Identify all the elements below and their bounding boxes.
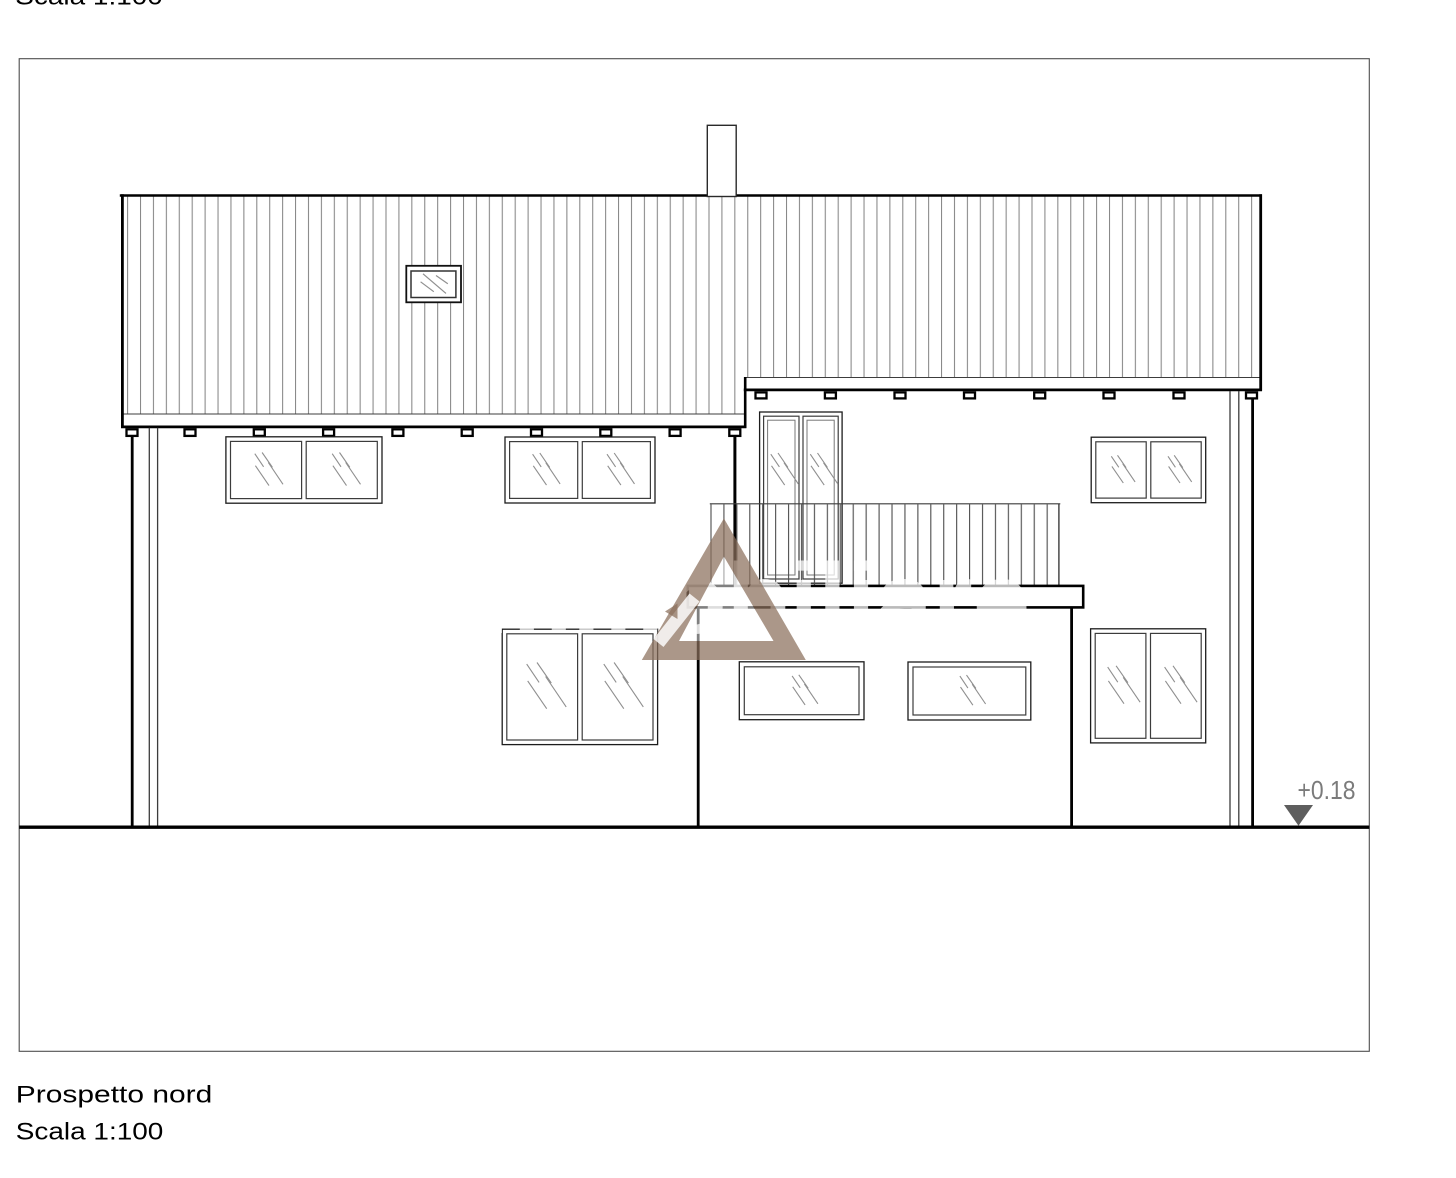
svg-text:Prospetto nord: Prospetto nord xyxy=(16,1081,212,1108)
svg-text:Scala 1:100: Scala 1:100 xyxy=(16,1118,164,1145)
svg-text:Scala 1:100: Scala 1:100 xyxy=(15,0,163,11)
svg-text:+0.18: +0.18 xyxy=(1298,777,1356,805)
